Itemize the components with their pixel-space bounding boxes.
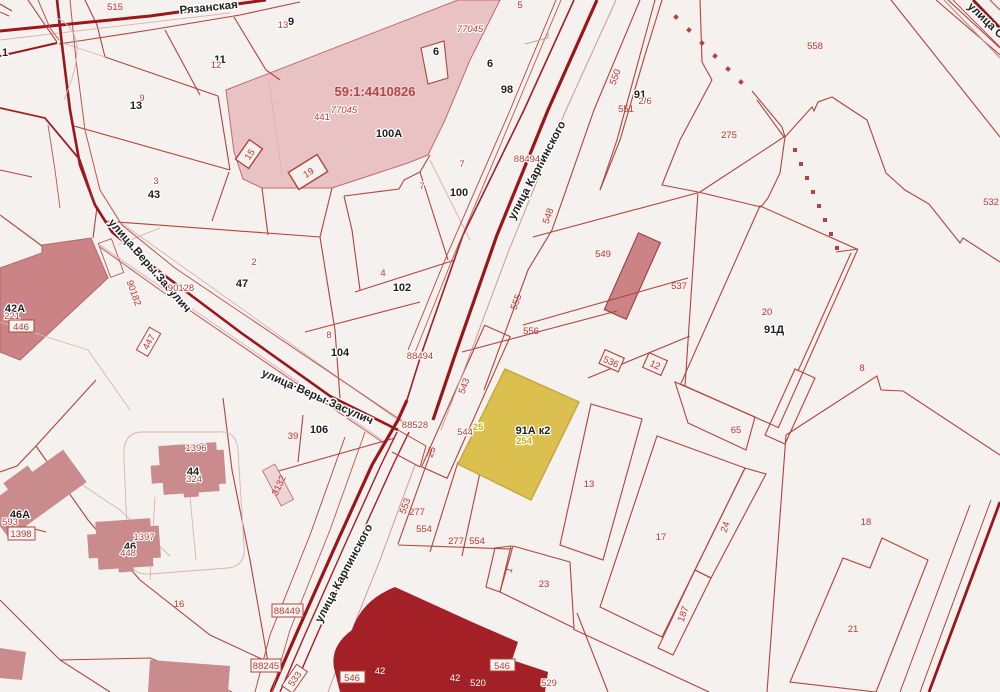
svg-text:47: 47: [236, 278, 248, 290]
svg-text:277: 277: [448, 536, 464, 547]
svg-text:59:1:4410826: 59:1:4410826: [335, 84, 416, 99]
svg-text:3: 3: [153, 176, 158, 187]
svg-text:100: 100: [450, 187, 468, 199]
svg-text:16: 16: [174, 599, 185, 610]
svg-text:448: 448: [120, 548, 136, 559]
svg-text:4: 4: [380, 268, 385, 279]
svg-text:88494: 88494: [514, 154, 540, 165]
svg-text:515: 515: [107, 2, 123, 13]
svg-text:8: 8: [859, 363, 864, 374]
svg-text:13: 13: [278, 20, 289, 31]
svg-text:9: 9: [288, 16, 294, 28]
svg-text:43: 43: [148, 189, 160, 201]
svg-text:549: 549: [595, 249, 611, 260]
svg-text:324: 324: [186, 474, 202, 485]
svg-text:7: 7: [419, 181, 424, 192]
svg-text:593: 593: [2, 517, 18, 528]
svg-text:6: 6: [433, 46, 439, 58]
svg-text:1397: 1397: [133, 532, 154, 543]
svg-text:2/6: 2/6: [638, 96, 651, 107]
svg-text:17: 17: [656, 532, 667, 543]
svg-text:554: 554: [469, 536, 485, 547]
svg-text:529: 529: [541, 678, 557, 689]
svg-text:446: 446: [13, 322, 29, 333]
svg-text:1: 1: [2, 47, 8, 59]
svg-text:88528: 88528: [402, 420, 428, 431]
svg-text:1396: 1396: [185, 443, 206, 454]
svg-text:20: 20: [762, 307, 773, 318]
svg-text:551: 551: [618, 104, 634, 115]
svg-text:5: 5: [517, 0, 522, 11]
svg-text:42: 42: [375, 666, 386, 677]
svg-text:544: 544: [457, 427, 473, 438]
svg-text:102: 102: [393, 282, 411, 294]
svg-text:537: 537: [671, 281, 687, 292]
svg-text:39: 39: [288, 431, 299, 442]
svg-text:1398: 1398: [10, 529, 31, 540]
svg-text:8: 8: [326, 330, 331, 341]
svg-text:554: 554: [416, 524, 432, 535]
svg-text:2: 2: [251, 257, 256, 268]
svg-text:13: 13: [584, 479, 595, 490]
svg-text:9: 9: [139, 93, 144, 104]
svg-text:556: 556: [523, 326, 539, 337]
svg-text:104: 104: [331, 347, 350, 359]
svg-text:98: 98: [501, 84, 513, 96]
svg-text:546: 546: [344, 673, 360, 684]
svg-text:275: 275: [721, 130, 737, 141]
svg-text:42: 42: [450, 673, 461, 684]
svg-text:7: 7: [459, 159, 464, 170]
svg-text:532: 532: [983, 197, 999, 208]
svg-text:23: 23: [539, 579, 550, 590]
svg-text:520: 520: [470, 678, 486, 689]
svg-text:546: 546: [494, 661, 510, 672]
svg-text:88494: 88494: [407, 351, 433, 362]
svg-text:88245: 88245: [253, 661, 279, 672]
svg-text:277: 277: [409, 507, 425, 518]
svg-text:12: 12: [211, 60, 222, 71]
svg-text:558: 558: [807, 41, 823, 52]
svg-text:90128: 90128: [168, 283, 194, 294]
svg-text:25: 25: [473, 422, 484, 433]
svg-text:18: 18: [861, 517, 872, 528]
svg-text:21: 21: [848, 624, 859, 635]
svg-text:88449: 88449: [274, 606, 300, 617]
svg-text:441: 441: [314, 112, 330, 123]
svg-text:254: 254: [516, 436, 533, 447]
svg-text:77045: 77045: [457, 24, 484, 35]
svg-text:91Д: 91Д: [764, 324, 784, 336]
svg-text:6: 6: [487, 58, 493, 70]
svg-text:77045: 77045: [331, 105, 358, 116]
svg-text:100А: 100А: [376, 128, 402, 140]
svg-text:65: 65: [731, 425, 742, 436]
svg-text:106: 106: [310, 424, 328, 436]
